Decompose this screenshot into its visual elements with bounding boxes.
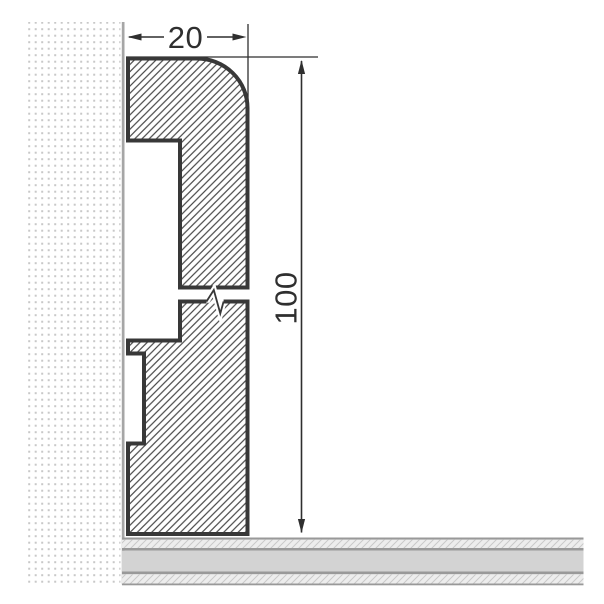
skirting-profile-section-drawing: 20 100 (0, 0, 604, 604)
width-dimension: 20 (128, 20, 247, 55)
floor-top-line (122, 538, 584, 540)
wall (25, 22, 125, 585)
arrowhead-down-icon (298, 519, 305, 533)
height-dimension-label: 100 (269, 271, 304, 324)
drawing-canvas: 20 100 (0, 0, 604, 604)
floor-separator-line-1 (122, 548, 584, 551)
floor-bottom-line (122, 584, 584, 586)
width-dimension-label: 20 (168, 20, 203, 55)
wall-stipple (25, 22, 121, 585)
arrowhead-right-icon (233, 34, 247, 41)
floor-slab-band (122, 551, 584, 572)
floor-base-hatch (122, 574, 584, 583)
floor (122, 538, 584, 586)
arrowhead-left-icon (128, 34, 142, 41)
wall-face-line (122, 22, 125, 585)
height-dimension: 100 (269, 60, 306, 533)
profile-upper-section (128, 59, 248, 288)
arrowhead-up-icon (298, 60, 305, 74)
skirting-profile (128, 59, 248, 535)
floor-screed-hatch (122, 540, 584, 548)
floor-separator-line-2 (122, 572, 584, 575)
